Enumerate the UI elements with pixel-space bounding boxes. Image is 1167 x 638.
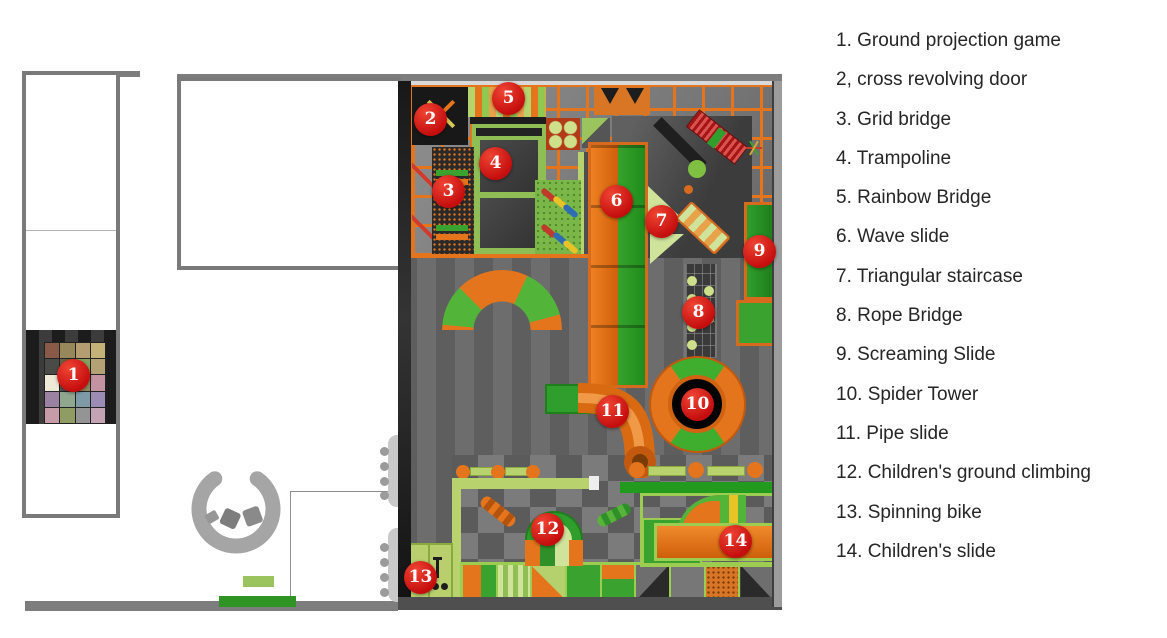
wall-stud (380, 573, 389, 582)
legend-item-12: 12. Children's ground climbing (836, 453, 1166, 492)
fence-cell (636, 565, 671, 600)
balance-beam (505, 467, 528, 476)
fence-cell-mat (706, 565, 741, 600)
fence-cell (602, 565, 637, 600)
orange-ball (684, 185, 693, 194)
green-ball (688, 160, 706, 178)
marker-1: 1 (57, 359, 90, 392)
wall-stud (380, 491, 389, 500)
legend-item-8: 8. Rope Bridge (836, 296, 1166, 335)
green-wall-beam (620, 482, 779, 493)
fence-cell (740, 565, 773, 600)
projection-column (22, 71, 120, 518)
projection-column-divider (26, 230, 116, 231)
marker-13: 13 (404, 561, 437, 594)
rope-arrow-cell (412, 202, 432, 252)
balance-post (629, 462, 645, 478)
wave-slide-segments (591, 145, 645, 385)
fence-cell (532, 565, 567, 600)
partition-line (290, 491, 291, 602)
projection-tile (45, 408, 59, 423)
trampoline-mat (480, 198, 538, 248)
projection-tile (91, 408, 105, 423)
climbing-block (555, 540, 569, 566)
legend-item-1: 1. Ground projection game (836, 21, 1166, 60)
grid-bridge-step (436, 225, 468, 231)
legend-item-7: 7. Triangular staircase (836, 257, 1166, 296)
legend-item-4: 4. Trampoline (836, 139, 1166, 178)
projection-tile (91, 359, 105, 374)
grid-bridge-step (436, 234, 468, 240)
rope-arrow-cell (412, 150, 432, 200)
wall-stud (380, 462, 389, 471)
rope-bridge-dot (704, 286, 714, 296)
trampoline-edge (476, 128, 542, 136)
projection-tile (91, 343, 105, 358)
partition-line (290, 491, 388, 492)
marker-3: 3 (432, 175, 465, 208)
wall-stud (380, 588, 389, 597)
legend-item-11: 11. Pipe slide (836, 414, 1166, 453)
ball-pit-cell (546, 118, 580, 150)
bike-icon (433, 557, 442, 560)
projection-tile (60, 408, 74, 423)
upper-room (177, 77, 402, 270)
low-wall-cap (589, 476, 599, 490)
marker-11: 11 (596, 395, 629, 428)
rainbow-bridge-edge (470, 117, 546, 124)
legend: 1. Ground projection game2, cross revolv… (836, 21, 1166, 571)
play-area-bottom-wall (398, 597, 782, 610)
balance-post (747, 462, 763, 478)
marker-8: 8 (682, 296, 715, 329)
wave-slide (588, 142, 648, 388)
wall-stud (380, 558, 389, 567)
wall-stud (380, 477, 389, 486)
fence-cell (567, 565, 602, 600)
wall-stud (380, 543, 389, 552)
projection-tile (76, 343, 90, 358)
reception-desk (186, 462, 290, 562)
projection-tile (91, 375, 105, 390)
marker-6: 6 (600, 185, 633, 218)
marker-12: 12 (531, 513, 564, 546)
balance-beam (648, 466, 686, 476)
marker-10: 10 (681, 388, 714, 421)
projection-tile (76, 392, 90, 407)
projection-tile (60, 392, 74, 407)
balance-post (688, 462, 704, 478)
legend-item-10: 10. Spider Tower (836, 375, 1166, 414)
projection-tile (45, 392, 59, 407)
marker-9: 9 (743, 235, 776, 268)
climbing-block (569, 540, 583, 566)
legend-item-14: 14. Children's slide (836, 532, 1166, 571)
rope-bridge-dot (687, 276, 697, 286)
wall-stud (380, 447, 389, 456)
balance-beam (470, 467, 493, 476)
bottom-wall (25, 601, 398, 611)
marker-7: 7 (645, 205, 678, 238)
legend-item-5: 5. Rainbow Bridge (836, 178, 1166, 217)
legend-item-6: 6. Wave slide (836, 217, 1166, 256)
legend-item-3: 3. Grid bridge (836, 100, 1166, 139)
play-area-left-wall (398, 81, 411, 607)
bench-green (219, 596, 296, 607)
marker-4: 4 (479, 147, 512, 180)
balance-beam (707, 466, 745, 476)
projection-tile (91, 392, 105, 407)
balance-post (491, 465, 505, 479)
balance-post (526, 465, 540, 479)
childrens-slide-lane (654, 523, 775, 561)
marker-5: 5 (492, 82, 525, 115)
legend-item-9: 9. Screaming Slide (836, 335, 1166, 374)
balance-post (456, 465, 470, 479)
climbing-block (525, 540, 540, 566)
fence-cell (463, 565, 498, 600)
u-ring-track (442, 270, 562, 330)
bike-icon (441, 583, 448, 590)
bench-light (243, 576, 274, 587)
projection-tile (45, 343, 59, 358)
play-area-right-wall (772, 81, 782, 607)
low-wall-beam (452, 478, 589, 489)
legend-item-2: 2, cross revolving door (836, 60, 1166, 99)
rope-bridge-dot (687, 340, 697, 350)
screaming-slide-foot (736, 300, 776, 346)
fence-cell (671, 565, 706, 600)
projection-tile (60, 343, 74, 358)
fence-cell-roller (498, 565, 533, 600)
legend-item-13: 13. Spinning bike (836, 493, 1166, 532)
projection-tile (76, 408, 90, 423)
marker-14: 14 (719, 525, 752, 558)
marker-2: 2 (414, 103, 447, 136)
